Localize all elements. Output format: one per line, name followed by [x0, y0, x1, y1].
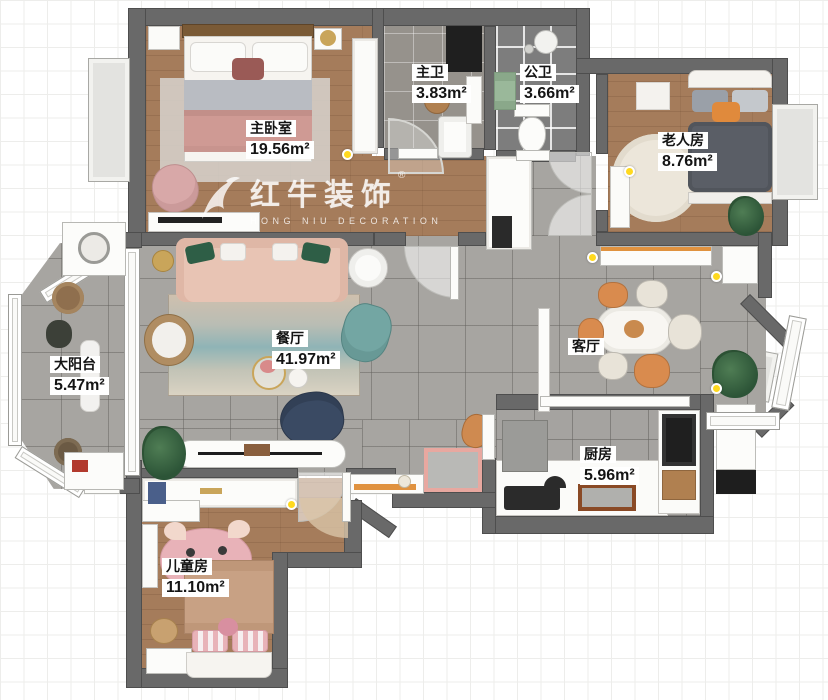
balcony-round-rug	[52, 282, 84, 314]
sofa-pillow-white-right	[272, 243, 298, 261]
kitchen-island	[502, 420, 548, 472]
master-cushion	[232, 58, 264, 80]
kids-basket	[150, 618, 178, 644]
kids-cabinet-art	[148, 482, 166, 504]
coffee-tray	[288, 368, 308, 388]
kitchen-window-top	[540, 396, 690, 407]
registered-mark: ®	[398, 170, 405, 181]
balcony-window-left	[8, 294, 22, 446]
bath-basin	[534, 30, 558, 54]
toilet-tank	[514, 104, 550, 117]
room-name: 大阳台	[50, 356, 100, 373]
room-area: 3.83m²	[412, 85, 471, 104]
elder-pillow-orange	[712, 102, 740, 122]
side-table	[348, 248, 388, 288]
desk-island-box	[244, 444, 270, 456]
bay-window-bottom	[706, 412, 780, 430]
room-label-master-bedroom: 主卧室 19.56m²	[246, 120, 314, 159]
elder-plant	[728, 196, 764, 236]
wall-corridor-bottom-b	[458, 232, 486, 246]
room-name: 餐厅	[272, 330, 308, 347]
brand-name: 红牛装饰	[250, 179, 398, 212]
kitchen-cutting-board	[662, 470, 696, 500]
room-label-elder-room: 老人房 8.76m²	[658, 132, 717, 171]
room-label-kids-room: 儿童房 11.10m²	[162, 558, 229, 597]
master-wardrobe	[352, 38, 378, 154]
wall-elder-left-lower	[596, 210, 608, 232]
wall-elder-right-lower	[772, 198, 788, 246]
light-dot-kids	[286, 499, 297, 510]
wall-elder-left-upper	[596, 74, 608, 154]
light-dot-elder	[624, 166, 635, 177]
light-dot-right-upper	[711, 271, 722, 282]
light-dot-hall	[587, 252, 598, 263]
wall-elder-right-upper	[772, 58, 788, 108]
bath-towel-shelf	[494, 72, 516, 110]
kids-pillow-right	[232, 630, 268, 652]
shower-head-icon	[524, 44, 534, 54]
room-label-master-bath: 主卫 3.83m²	[412, 64, 471, 103]
kids-wardrobe	[142, 524, 158, 588]
dining-chair-2	[636, 280, 668, 308]
room-name: 公卫	[520, 64, 556, 81]
room-area: 11.10m²	[162, 579, 229, 598]
toilet-bowl	[518, 117, 546, 153]
master-blanket-gray	[184, 80, 312, 112]
fridge-black	[716, 470, 756, 494]
pig-rug-eye-left	[186, 548, 195, 557]
room-label-balcony: 大阳台 5.47m²	[50, 356, 109, 395]
pig-rug-ear-left	[164, 522, 186, 540]
master-bay-window	[88, 58, 130, 182]
hall-shoe-cabinet	[492, 216, 512, 248]
room-name: 儿童房	[162, 558, 212, 575]
kitchen-sink	[662, 414, 696, 466]
sofa-pillow-white-left	[220, 243, 246, 261]
dining-chair-4	[668, 314, 702, 350]
elder-window-seat	[772, 104, 818, 200]
wall-kids-left	[126, 460, 142, 688]
elder-bed-headboard	[688, 70, 772, 88]
wall-corridor-bottom-a	[374, 232, 406, 246]
room-name: 老人房	[658, 132, 708, 149]
room-label-public-bath: 公卫 3.66m²	[520, 64, 579, 103]
wicker-chair-cushion	[152, 322, 186, 358]
pig-rug-eye-right	[218, 546, 227, 555]
room-name: 厨房	[580, 446, 616, 463]
kids-door-leaf	[342, 472, 351, 522]
master-nightstand-left	[148, 26, 180, 50]
wall-kids-right-lower	[272, 552, 288, 678]
floor-lamp	[152, 250, 174, 272]
elder-mat	[636, 82, 670, 110]
master-door-leaf	[450, 246, 459, 300]
kids-pompom	[218, 618, 238, 636]
light-dot-master	[342, 149, 353, 160]
brand-watermark: 红牛装饰® HONG NIU DECORATION	[196, 170, 442, 226]
room-label-living: 客厅	[568, 338, 604, 355]
pig-rug-ear-right	[228, 520, 250, 538]
side-niche-item	[72, 460, 88, 472]
dining-chair-1	[598, 282, 628, 308]
room-name: 客厅	[568, 338, 604, 355]
washing-machine	[78, 232, 110, 264]
kids-bed-headboard	[186, 652, 272, 678]
console-cup	[398, 475, 411, 488]
wall-master-left	[128, 8, 146, 238]
kitchen-door	[482, 414, 495, 460]
master-gold-tray	[320, 30, 336, 46]
room-area: 8.76m²	[658, 153, 717, 172]
right-closet	[722, 246, 758, 284]
kitchen-stove	[504, 486, 560, 510]
elder-sideboard	[600, 246, 712, 266]
master-bath-door	[398, 148, 438, 159]
living-plant	[142, 426, 186, 480]
room-area: 19.56m²	[246, 141, 314, 160]
public-bath-door	[516, 150, 550, 161]
wall-kitchen-bottom	[482, 516, 714, 534]
room-area: 41.97m²	[272, 351, 340, 370]
bull-logo-icon	[196, 173, 242, 223]
light-dot-right-lower	[711, 383, 722, 394]
dining-chair-5	[598, 352, 628, 380]
room-name: 主卧室	[246, 120, 296, 137]
room-area: 3.66m²	[520, 85, 579, 104]
room-area: 5.47m²	[50, 377, 109, 396]
balcony-sliding-door	[124, 248, 140, 476]
room-name: 主卫	[412, 64, 448, 81]
vanity-table	[424, 448, 482, 492]
room-label-kitchen: 厨房 5.96m²	[580, 446, 639, 485]
balcony-dark-plant	[46, 320, 72, 348]
wall-right-below-elder	[758, 232, 772, 298]
brand-subtitle: HONG NIU DECORATION	[250, 216, 442, 226]
dining-centerpiece	[624, 320, 644, 338]
floor-plan: 红牛装饰® HONG NIU DECORATION 主卧室 19.56m² 主卫…	[0, 0, 828, 700]
kids-cabinet-deco	[200, 488, 222, 494]
dining-chair-6	[634, 354, 670, 388]
wall-living-bottom	[392, 492, 496, 508]
room-label-dining: 餐厅 41.97m²	[272, 330, 340, 369]
kitchen-window-bottom	[578, 484, 636, 511]
room-area: 5.96m²	[580, 467, 639, 486]
